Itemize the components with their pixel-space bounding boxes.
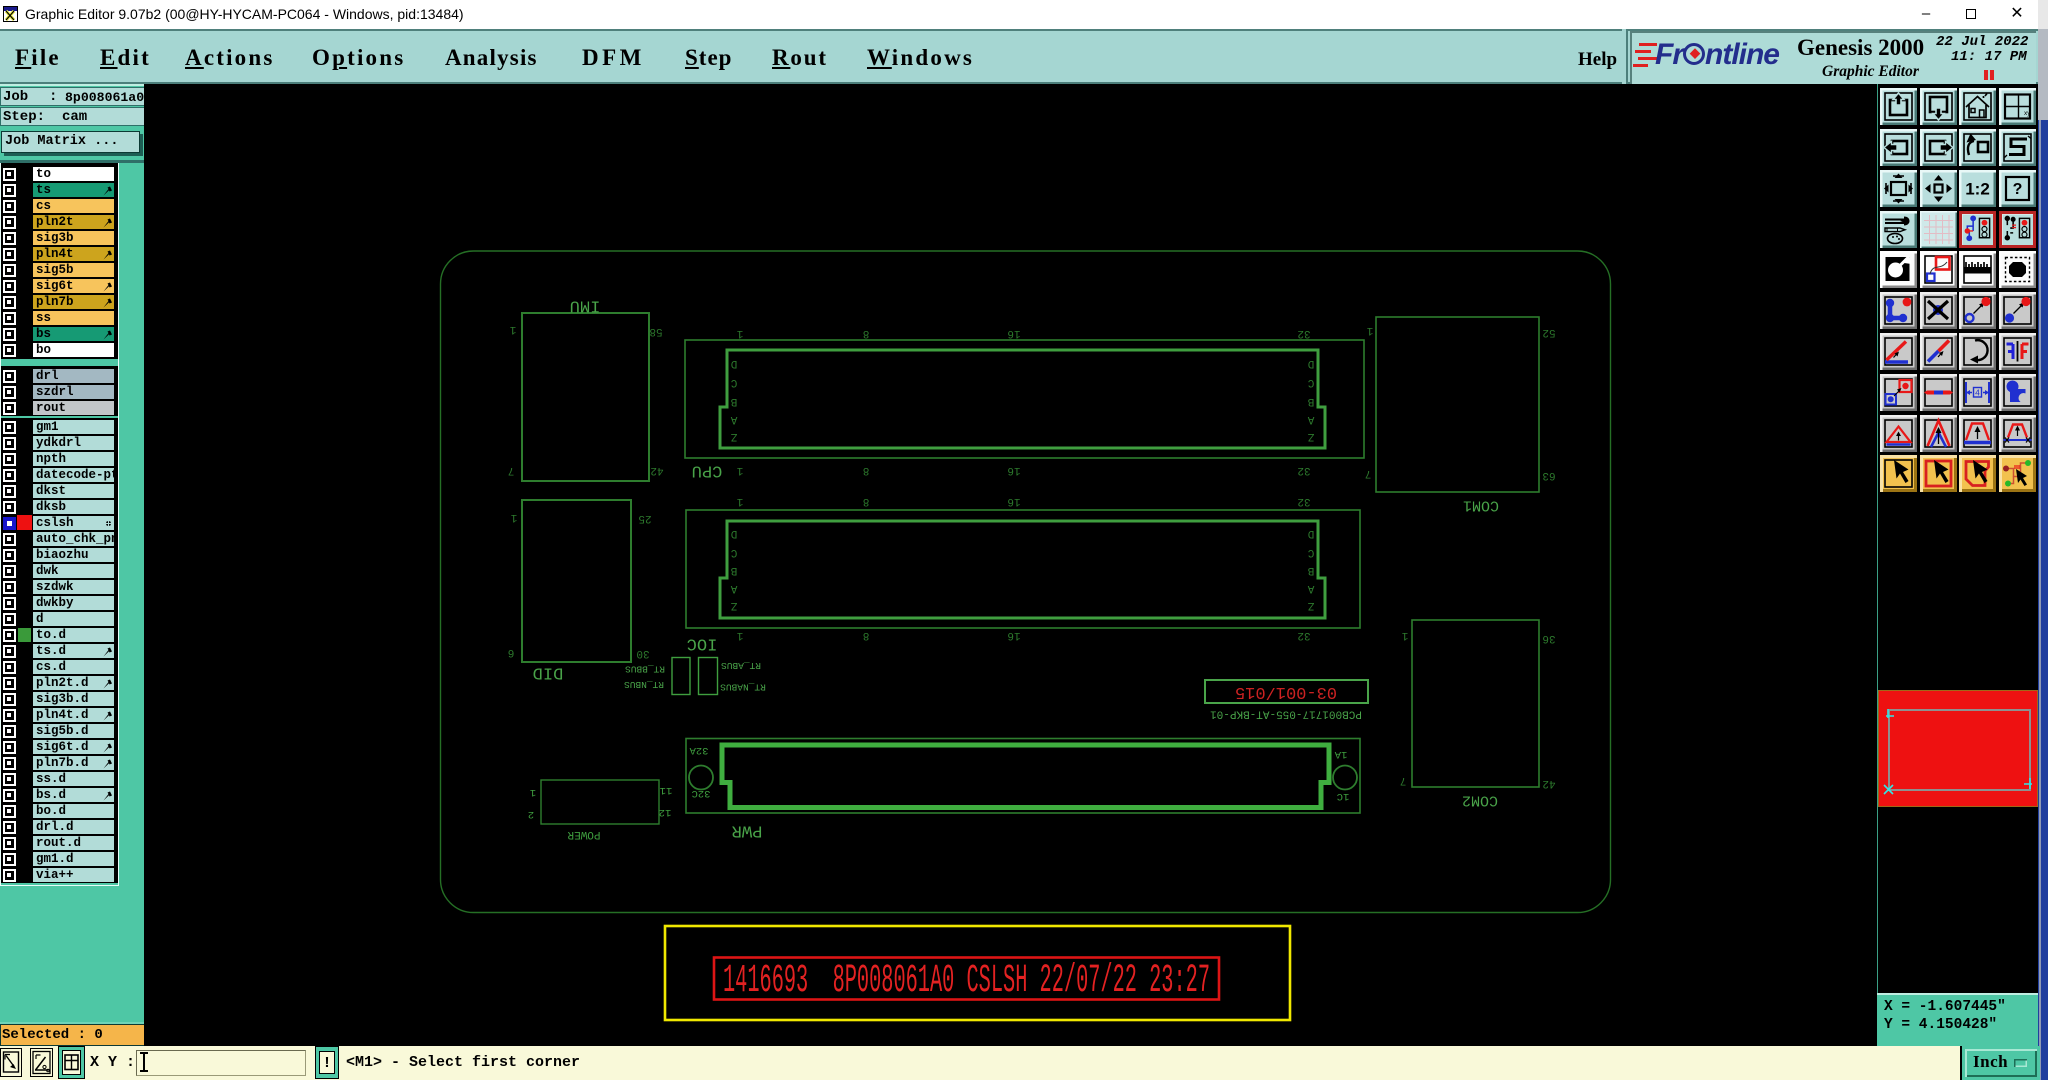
svg-text:IOC: IOC xyxy=(687,634,718,653)
svg-text:1: 1 xyxy=(1366,324,1373,336)
svg-text:6: 6 xyxy=(508,646,515,658)
svg-text:RT_NABUS: RT_NABUS xyxy=(720,682,766,693)
svg-text:16: 16 xyxy=(1007,464,1020,476)
svg-text:42: 42 xyxy=(650,464,663,476)
svg-text:B: B xyxy=(1307,395,1314,407)
svg-text:1A: 1A xyxy=(1334,748,1347,760)
svg-text:1: 1 xyxy=(736,464,743,476)
svg-text:D: D xyxy=(1307,357,1314,369)
svg-text:Z: Z xyxy=(730,599,737,611)
svg-text:1: 1 xyxy=(530,786,536,798)
svg-text:16: 16 xyxy=(1007,629,1020,641)
svg-text:1: 1 xyxy=(736,495,743,507)
svg-text:1: 1 xyxy=(510,511,517,523)
svg-text:1: 1 xyxy=(736,327,743,339)
svg-text:32: 32 xyxy=(1297,464,1310,476)
svg-text:A: A xyxy=(730,413,737,425)
svg-text:PCB001717-055-AT-BKP-01: PCB001717-055-AT-BKP-01 xyxy=(1210,708,1362,720)
svg-text:Z: Z xyxy=(1307,430,1314,442)
svg-text:Z: Z xyxy=(730,430,737,442)
svg-text:1: 1 xyxy=(736,629,743,641)
svg-text:1:2: 1:2 xyxy=(1965,180,1990,199)
svg-text:A: A xyxy=(1307,582,1314,594)
svg-text:8: 8 xyxy=(863,629,870,641)
svg-text:RT_ABUS: RT_ABUS xyxy=(721,660,761,671)
svg-text:16: 16 xyxy=(1007,495,1020,507)
svg-text:C: C xyxy=(730,546,737,558)
svg-text:8: 8 xyxy=(863,495,870,507)
svg-text:8: 8 xyxy=(863,464,870,476)
svg-text:8: 8 xyxy=(863,327,870,339)
svg-text:7: 7 xyxy=(508,464,515,476)
svg-text:D: D xyxy=(730,357,737,369)
svg-text:1: 1 xyxy=(509,323,516,335)
svg-text:32: 32 xyxy=(1297,629,1310,641)
svg-text:COM1: COM1 xyxy=(1463,497,1499,514)
svg-text:B: B xyxy=(730,564,737,576)
svg-text:B: B xyxy=(730,395,737,407)
svg-text:RT_NBUS: RT_NBUS xyxy=(624,679,664,690)
svg-text:7: 7 xyxy=(1400,774,1407,786)
svg-text:32: 32 xyxy=(1297,327,1310,339)
svg-text:4: 4 xyxy=(1975,388,1980,398)
svg-text:D: D xyxy=(730,527,737,539)
svg-text:A: A xyxy=(730,582,737,594)
svg-text:C: C xyxy=(1307,546,1314,558)
svg-text:25: 25 xyxy=(638,512,651,524)
svg-text:?: ? xyxy=(2012,181,2022,198)
svg-text:RT_BBUS: RT_BBUS xyxy=(625,664,665,675)
svg-text:IMU: IMU xyxy=(570,296,601,315)
svg-text:A: A xyxy=(1307,413,1314,425)
svg-text:30: 30 xyxy=(636,647,649,659)
svg-text:PWR: PWR xyxy=(732,821,763,840)
svg-text:32: 32 xyxy=(1297,495,1310,507)
svg-text:B: B xyxy=(1307,564,1314,576)
svg-text:7: 7 xyxy=(1365,467,1372,479)
svg-text:Z: Z xyxy=(1307,599,1314,611)
svg-text:CPU: CPU xyxy=(692,461,723,480)
svg-text:63: 63 xyxy=(1542,469,1555,481)
svg-text:D: D xyxy=(1307,527,1314,539)
svg-text:xy: xy xyxy=(2024,110,2031,117)
svg-text:32C: 32C xyxy=(692,787,711,799)
svg-text:11: 11 xyxy=(660,784,673,796)
svg-text:POWER: POWER xyxy=(567,828,600,840)
svg-text:COM2: COM2 xyxy=(1462,792,1498,809)
svg-text:03-001/015: 03-001/015 xyxy=(1235,682,1337,701)
svg-text:1C: 1C xyxy=(1337,790,1350,802)
svg-text:2: 2 xyxy=(528,808,534,820)
svg-text:1416693 8P008061A0 CSLSH 22/0: 1416693 8P008061A0 CSLSH 22/07/22 23:27 xyxy=(723,959,1210,1004)
svg-text:DID: DID xyxy=(533,663,564,682)
svg-text:12: 12 xyxy=(659,806,672,818)
svg-text:16: 16 xyxy=(1007,327,1020,339)
svg-text:32A: 32A xyxy=(689,744,709,756)
svg-text:58: 58 xyxy=(649,325,662,337)
svg-text:C: C xyxy=(1307,376,1314,388)
svg-text:52: 52 xyxy=(1542,326,1555,338)
svg-text:1: 1 xyxy=(1401,629,1408,641)
svg-text:42: 42 xyxy=(1542,777,1555,789)
svg-text:36: 36 xyxy=(1542,632,1555,644)
svg-text:C: C xyxy=(730,376,737,388)
